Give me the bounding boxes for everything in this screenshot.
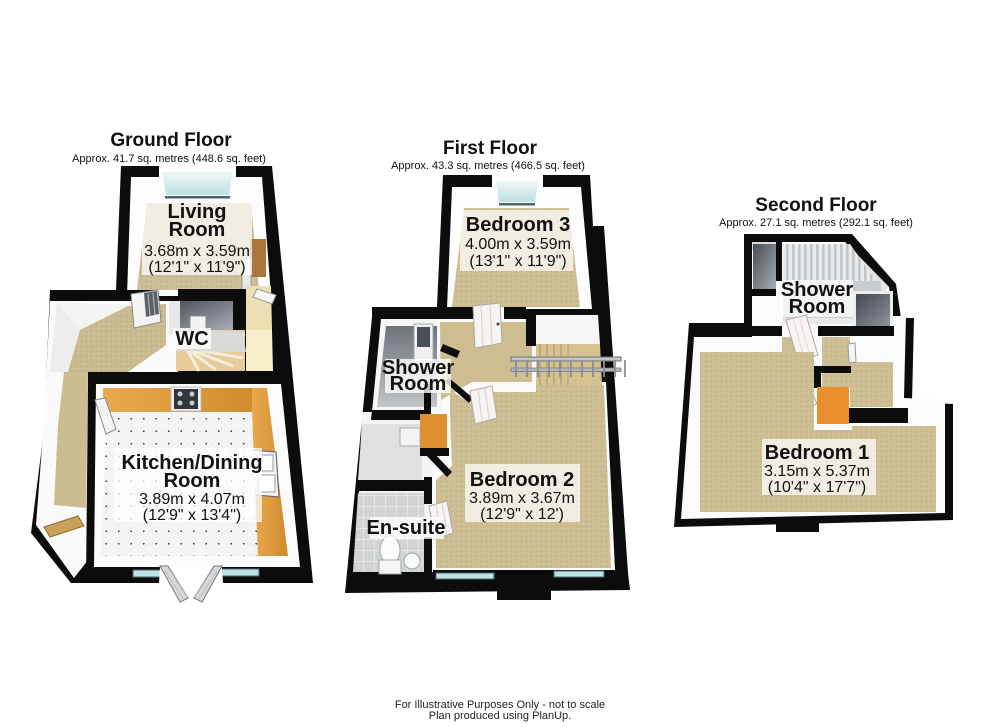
svg-text:Ground Floor: Ground Floor [110,130,232,151]
svg-text:Room: Room [789,296,846,318]
svg-text:4.00m x 3.59m: 4.00m x 3.59m [465,236,571,253]
svg-text:(12'9" x 13'4"): (12'9" x 13'4") [143,507,241,524]
svg-text:Bedroom 1: Bedroom 1 [765,442,869,464]
svg-text:Room: Room [390,373,447,395]
svg-text:Approx. 41.7 sq. metres (448.6: Approx. 41.7 sq. metres (448.6 sq. feet) [72,153,266,165]
svg-text:Second Floor: Second Floor [755,195,877,216]
svg-text:(13'1" x 11'9"): (13'1" x 11'9") [469,253,566,270]
svg-text:Bedroom 2: Bedroom 2 [470,469,574,491]
svg-text:3.68m x 3.59m: 3.68m x 3.59m [144,243,250,260]
svg-text:Approx. 43.3 sq. metres (466.5: Approx. 43.3 sq. metres (466.5 sq. feet) [391,160,585,172]
svg-text:(12'9" x 12'): (12'9" x 12') [480,506,564,523]
svg-text:Approx. 27.1 sq. metres (292.1: Approx. 27.1 sq. metres (292.1 sq. feet) [719,217,913,229]
svg-text:En-suite: En-suite [367,517,446,539]
svg-text:Bedroom 3: Bedroom 3 [466,214,570,236]
svg-text:3.89m x 4.07m: 3.89m x 4.07m [139,491,245,508]
svg-text:(10'4" x 17'7"): (10'4" x 17'7") [768,479,866,496]
svg-text:(12'1" x 11'9"): (12'1" x 11'9") [148,259,245,276]
svg-text:WC: WC [175,328,208,350]
svg-text:Room: Room [169,219,226,241]
svg-text:3.15m x 5.37m: 3.15m x 5.37m [764,463,870,480]
svg-text:3.89m x 3.67m: 3.89m x 3.67m [469,490,575,507]
svg-text:First Floor: First Floor [443,138,538,159]
svg-text:Plan produced using PlanUp.: Plan produced using PlanUp. [429,710,571,722]
svg-text:Room: Room [164,470,221,492]
